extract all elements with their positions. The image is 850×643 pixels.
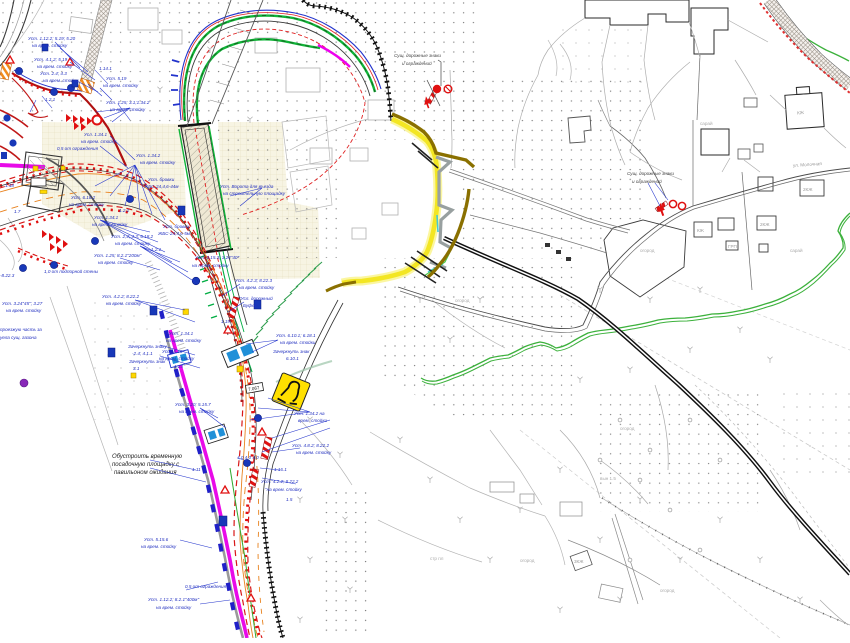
svg-text:на врем. стойку: на врем. стойку — [32, 42, 68, 48]
svg-text:на врем. стойку: на врем. стойку — [239, 284, 275, 290]
svg-text:проезжую часть за: проезжую часть за — [0, 327, 42, 332]
svg-text:1.5: 1.5 — [286, 497, 293, 502]
svg-text:Уст. 3.20; 5.15.7: Уст. 3.20; 5.15.7 — [175, 402, 211, 407]
svg-text:Уст. 2,4; 4.3; 6.18.2: Уст. 2,4; 4.3; 6.18.2 — [111, 234, 154, 239]
svg-text:огород: огород — [455, 298, 470, 303]
svg-text:Уст. 1.12.2; 5.19; 5.20: Уст. 1.12.2; 5.19; 5.20 — [28, 36, 76, 41]
svg-text:на врем. стойки: на врем. стойки — [280, 339, 316, 345]
svg-text:Уст. 5.15.6: Уст. 5.15.6 — [144, 537, 169, 542]
svg-text:Уст. 5.19: Уст. 5.19 — [106, 76, 127, 81]
svg-text:стр пл: стр пл — [430, 556, 444, 561]
svg-text:Сущ. дорожные знаки: Сущ. дорожные знаки — [394, 53, 441, 58]
svg-text:0,5 от ограждения: 0,5 от ограждения — [185, 584, 227, 589]
svg-text:2КЖ: 2КЖ — [760, 222, 770, 227]
svg-text:Уст. Ворота для въезда: Уст. Ворота для въезда — [220, 184, 274, 189]
svg-text:Уст. 1.34.2: Уст. 1.34.2 — [136, 153, 161, 158]
svg-text:Уст. 4.2.2; 8.22.2: Уст. 4.2.2; 8.22.2 — [102, 294, 139, 299]
svg-text:на врем. стойку: на врем. стойку — [98, 259, 134, 265]
svg-text:на врем. стойку: на врем. стойку — [296, 449, 332, 455]
svg-text:на трем. стойку: на трем. стойку — [192, 262, 229, 268]
svg-text:на врем. стойку: на врем. стойку — [140, 159, 176, 165]
svg-text:1.14.1: 1.14.1 — [99, 66, 112, 71]
svg-text:-2.4; 4.1.1: -2.4; 4.1.1 — [132, 351, 153, 356]
svg-text:Уст. 1.12.2; 8.2.1"400м": Уст. 1.12.2; 8.2.1"400м" — [148, 597, 199, 602]
svg-text:ГРП: ГРП — [728, 244, 737, 249]
svg-text:Усл. 1.34.1: Усл. 1.34.1 — [84, 132, 107, 137]
svg-text:Уст. 2.4; 4.3: Уст. 2.4; 4.3 — [40, 71, 67, 76]
svg-text:сарай: сарай — [790, 247, 803, 253]
svg-text:Уст. 4.8.2; 8.22.2: Уст. 4.8.2; 8.22.2 — [292, 443, 329, 448]
svg-text:и ограждений: и ограждений — [402, 60, 432, 66]
svg-text:4,0 4,0 4,0: 4,0 4,0 4,0 — [237, 455, 259, 460]
svg-text:0,5 от ограждения: 0,5 от ограждения — [57, 146, 99, 151]
svg-text:3.1: 3.1 — [133, 366, 140, 371]
svg-text:уела сущ. газона: уела сущ. газона — [0, 335, 37, 340]
svg-text:1.2.1: 1.2.1 — [119, 208, 130, 213]
svg-text:Уст. 5,16: Уст. 5,16 — [162, 349, 183, 354]
svg-text:Уст. 3.24"45"; 3.27: Уст. 3.24"45"; 3.27 — [2, 301, 43, 306]
svg-text:1.18: 1.18 — [5, 183, 14, 188]
svg-text:ЖБС-24,4,6-5м: ЖБС-24,4,6-5м — [157, 231, 191, 236]
svg-text:КЖ: КЖ — [697, 228, 705, 233]
svg-text:Обустроить временную: Обустроить временную — [112, 454, 182, 460]
svg-text:1.23: 1.23 — [174, 364, 183, 369]
svg-text:на врем. стойку: на врем. стойку — [115, 240, 151, 246]
svg-text:на врем. стойку: на врем. стойку — [106, 300, 142, 306]
svg-text:Уст. бровки: Уст. бровки — [148, 177, 175, 182]
svg-text:на врем. стойку: на врем. стойку — [159, 355, 195, 361]
svg-text:6.10.1: 6.10.1 — [286, 356, 299, 361]
svg-text:на врем. стойку: на врем. стойку — [156, 604, 192, 610]
svg-text:Уст. 4.1.2; 5.19: Уст. 4.1.2; 5.19 — [34, 57, 68, 62]
svg-text:на врем. стойку: на врем. стойку — [166, 337, 202, 343]
svg-text:на врем. стойку: на врем. стойку — [37, 63, 73, 69]
svg-text:на врем. стойку: на врем. стойку — [141, 543, 177, 549]
svg-text:Уст. 6.18.2: Уст. 6.18.2 — [71, 195, 96, 200]
svg-text:1.7: 1.7 — [14, 209, 21, 214]
svg-text:Уст. 1.34.1: Уст. 1.34.1 — [94, 215, 119, 220]
svg-text:КЖ: КЖ — [797, 110, 805, 116]
svg-text:Уст. бровки: Уст. бровки — [163, 224, 190, 229]
svg-text:павильоном ожидания: павильоном ожидания — [114, 470, 177, 476]
svg-text:и ограждений: и ограждений — [632, 178, 662, 184]
svg-text:огород: огород — [660, 588, 675, 593]
svg-text:"на врем. стойку: "на врем. стойку — [265, 486, 302, 492]
svg-text:сарай: сарай — [700, 120, 713, 126]
svg-text:Зачеркнуть знак: Зачеркнуть знак — [273, 349, 310, 354]
svg-text:на врем. стойку: на врем. стойку — [69, 201, 105, 207]
svg-text:-8.22.3: -8.22.3 — [0, 273, 15, 278]
svg-text:на врем. стойку: на врем. стойку — [43, 77, 79, 83]
svg-text:1,0 от подпорной стены: 1,0 от подпорной стены — [44, 268, 99, 274]
svg-text:на врем. стойку: на врем. стойку — [6, 307, 42, 313]
svg-text:на врем. стойку: на врем. стойку — [81, 138, 117, 144]
svg-text:"Усл. дорожный: "Усл. дорожный — [239, 295, 273, 301]
svg-text:огород: огород — [520, 558, 535, 563]
svg-text:посадочную площадку с: посадочную площадку с — [112, 462, 179, 468]
svg-text:Уст. 6.10.1; 6.18.1: Уст. 6.10.1; 6.18.1 — [276, 333, 316, 338]
svg-text:ЖБС-24,4,6-44м: ЖБС-24,4,6-44м — [143, 184, 179, 189]
svg-text:Уст. 1.34.1: Уст. 1.34.1 — [169, 331, 194, 336]
svg-text:3КЖ: 3КЖ — [574, 559, 584, 564]
svg-text:Уст. 1.25; 3.1;1.34.2: Уст. 1.25; 3.1;1.34.2 — [106, 100, 150, 105]
svg-text:1.19: 1.19 — [221, 319, 230, 324]
svg-text:2КЖ: 2КЖ — [803, 187, 813, 192]
svg-text:Уст. 4.2.3; 8.22.3: Уст. 4.2.3; 8.22.3 — [235, 278, 272, 283]
svg-text:огород: огород — [640, 248, 655, 253]
svg-text:Буфер": Буфер" — [243, 303, 259, 308]
svg-text:Сущ. дорожные знаки: Сущ. дорожные знаки — [627, 171, 674, 176]
svg-text:вын 1.5: вын 1.5 — [600, 476, 616, 481]
svg-text:на врем. стойку: на врем. стойку — [103, 82, 139, 88]
svg-text:Уст. 6,15.3; 3.24"40": Уст. 6,15.3; 3.24"40" — [195, 255, 239, 260]
svg-text:Уст. 1.25; 8.2.1"200м": Уст. 1.25; 8.2.1"200м" — [94, 253, 142, 258]
svg-text:огород: огород — [620, 426, 635, 431]
